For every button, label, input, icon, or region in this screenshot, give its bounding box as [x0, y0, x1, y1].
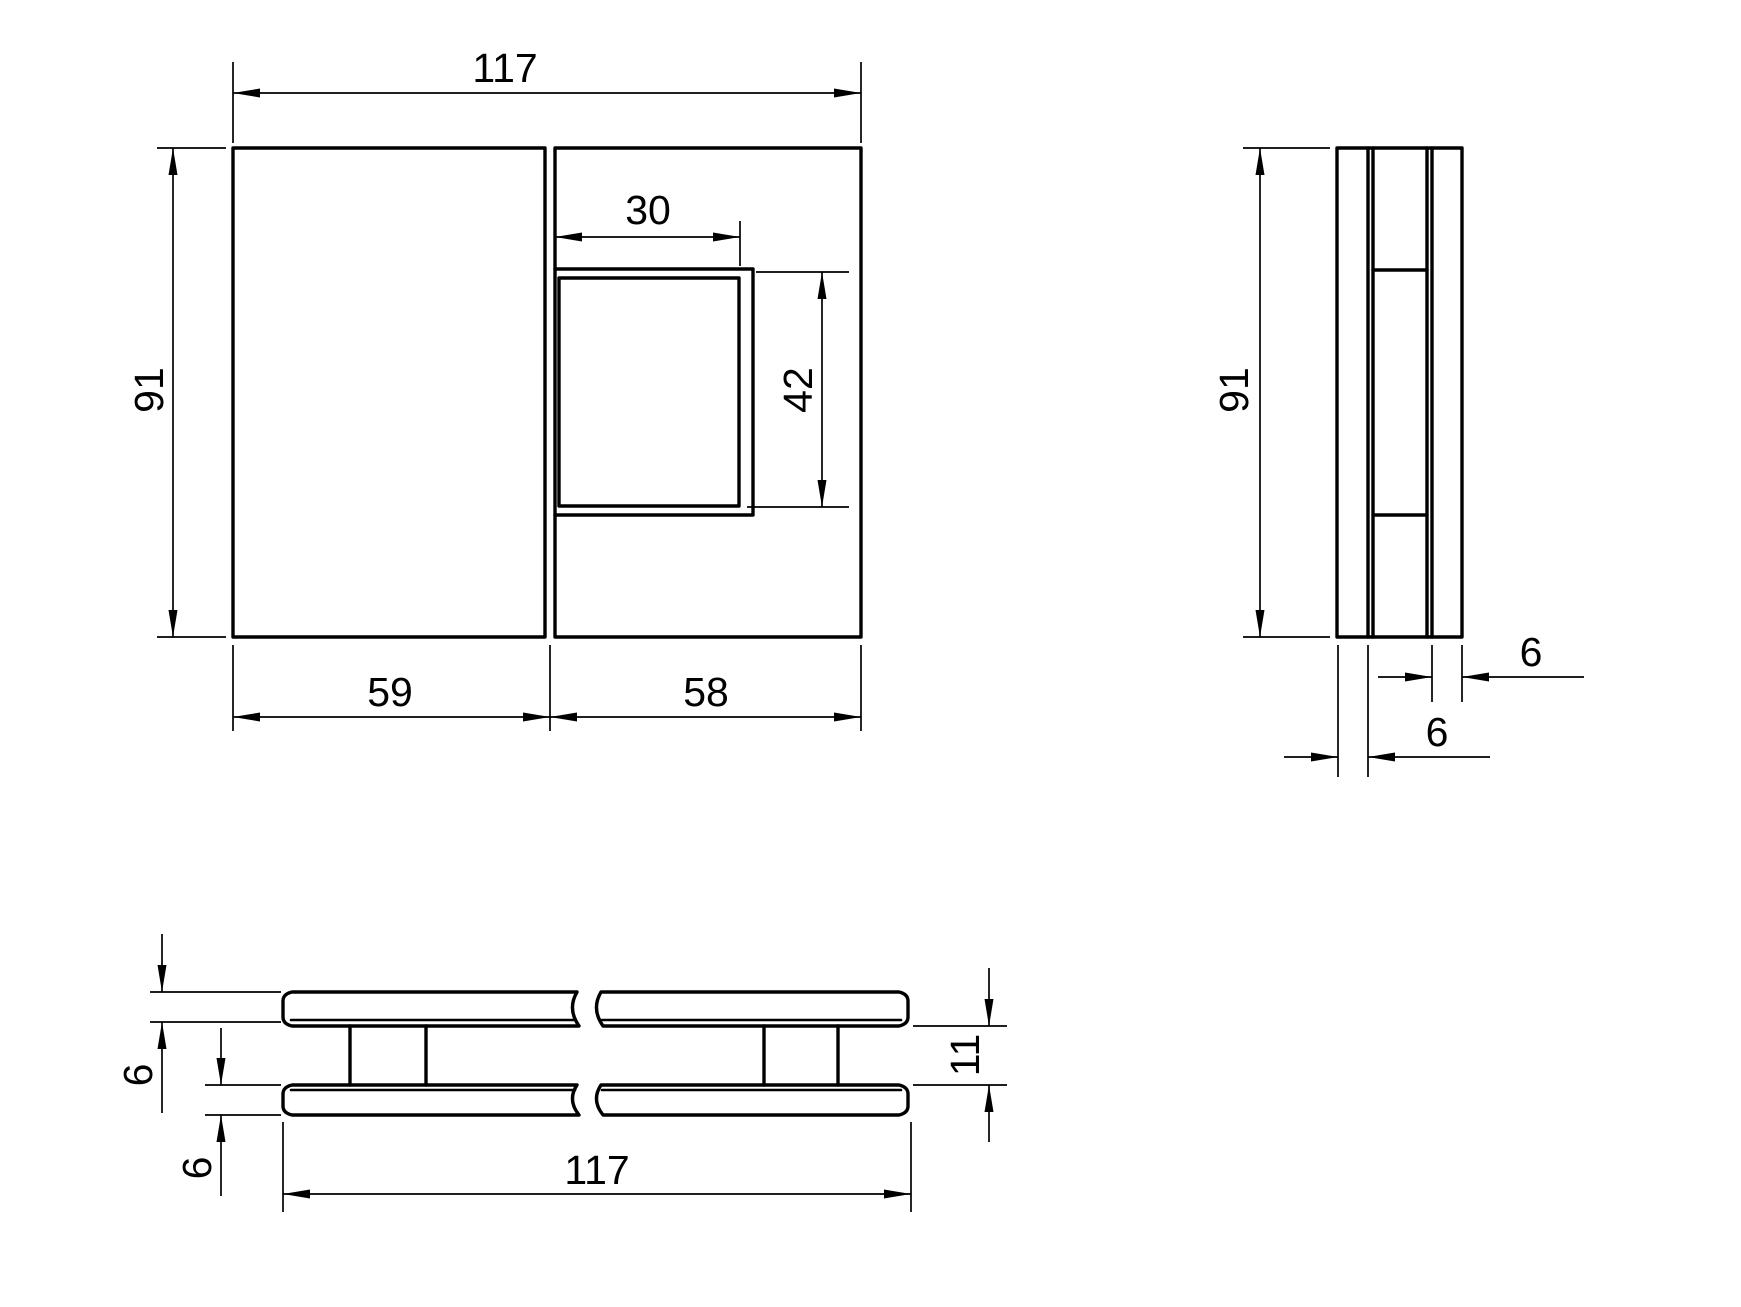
right-panel-width-label: 58: [683, 669, 729, 715]
side-dim-right-plate: 6: [1378, 629, 1584, 702]
front-dim-cutout-width: 30: [555, 187, 740, 266]
front-view: 117 91 30 42 59: [126, 45, 861, 731]
section-dim-plate-gap: 11: [913, 968, 1007, 1142]
left-connector-block: [350, 1026, 426, 1085]
section-dim-bottom-plate: 6: [174, 1028, 281, 1196]
front-left-panel: [233, 148, 545, 637]
side-overall-height-label: 91: [1211, 367, 1257, 413]
front-overall-width-label: 117: [472, 45, 537, 91]
side-dim-left-plate: 6: [1284, 645, 1490, 777]
technical-drawing: 117 91 30 42 59: [0, 0, 1741, 1307]
cutout-width-label: 30: [625, 187, 671, 233]
plate-gap-label: 11: [942, 1034, 988, 1077]
front-dim-overall-width: 117: [233, 45, 861, 143]
side-view: 91 6 6: [1211, 148, 1584, 777]
section-dim-top-plate: 6: [115, 934, 281, 1113]
bottom-plate-thickness-label: 6: [174, 1157, 220, 1180]
drawing-sheet: 117 91 30 42 59: [0, 0, 1741, 1307]
right-connector-block: [764, 1026, 838, 1085]
section-view: 6 6 11 117: [115, 934, 1007, 1212]
section-overall-width-label: 117: [564, 1147, 629, 1193]
right-plate-thickness-label: 6: [1520, 629, 1543, 675]
front-dim-overall-height: 91: [126, 148, 226, 637]
left-plate-thickness-label: 6: [1426, 709, 1449, 755]
clamp-outer-edge: [555, 269, 753, 515]
top-plate-thickness-label: 6: [115, 1064, 161, 1087]
front-dim-cutout-height: 42: [747, 272, 849, 507]
clamp-cutout: [559, 278, 739, 506]
front-dim-panel-widths: 59 58: [233, 645, 861, 731]
left-panel-width-label: 59: [367, 669, 413, 715]
side-dim-overall-height: 91: [1211, 148, 1330, 637]
cutout-height-label: 42: [775, 367, 821, 413]
front-overall-height-label: 91: [126, 367, 172, 413]
section-dim-overall-width: 117: [283, 1122, 911, 1212]
side-outline: [1337, 148, 1462, 637]
